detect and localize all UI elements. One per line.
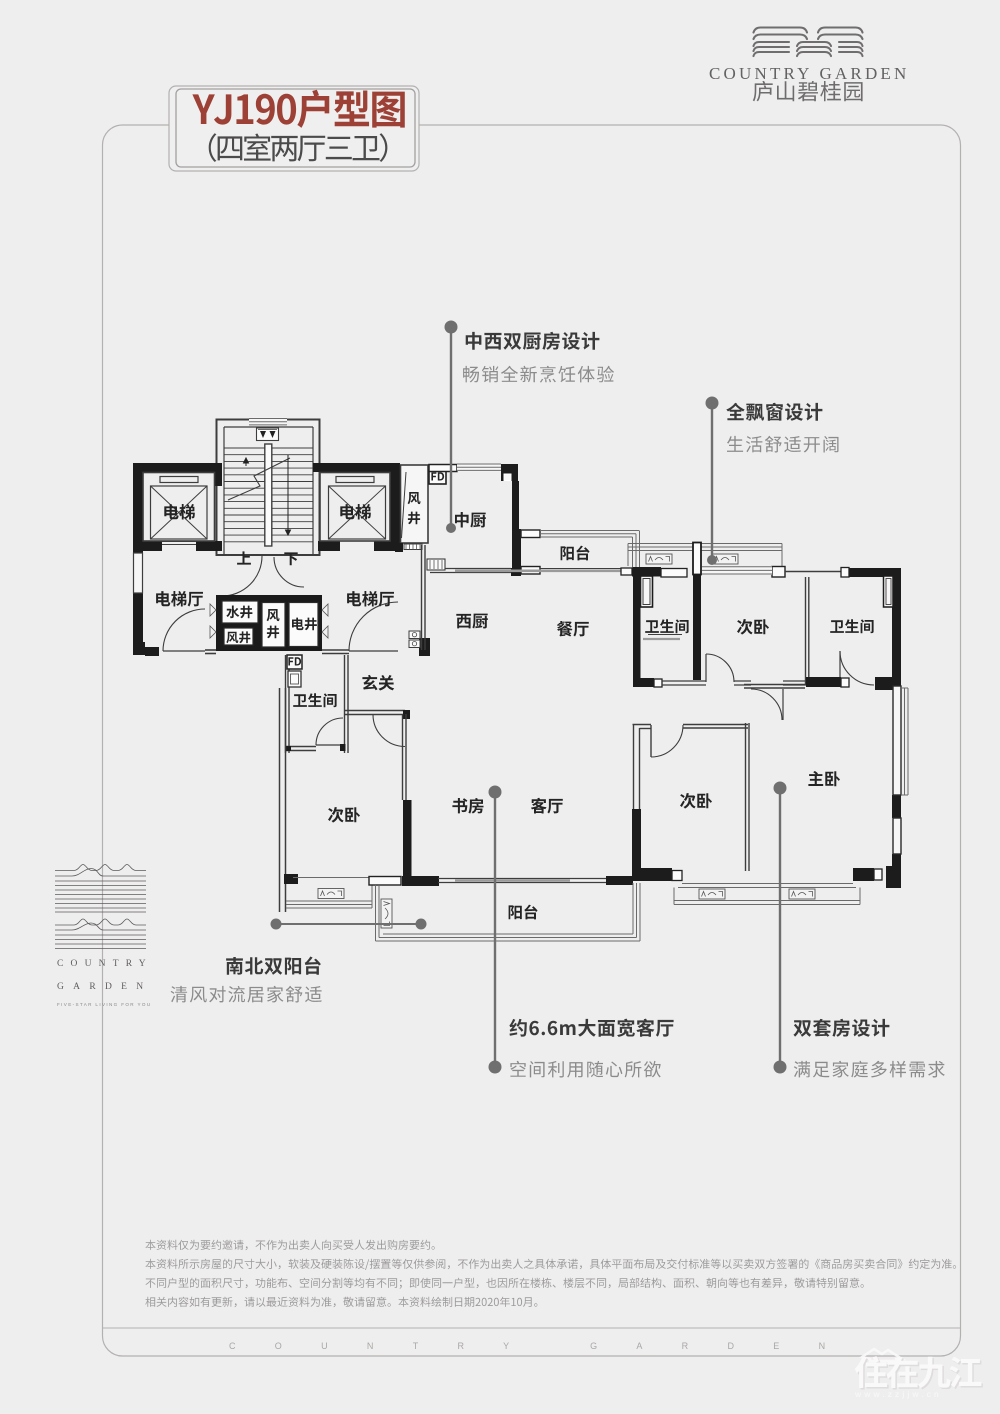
svg-text:FIVE-STAR LIVING FOR YOU: FIVE-STAR LIVING FOR YOU <box>57 1002 152 1007</box>
svg-text:COUNTRY: COUNTRY <box>57 959 153 969</box>
svg-text:COUNTRY GARDEN: COUNTRY GARDEN <box>229 1341 864 1351</box>
svg-text:GARDEN: GARDEN <box>57 982 152 992</box>
svg-text:COUNTRY GARDEN: COUNTRY GARDEN <box>709 64 909 83</box>
svg-text:www.zzjjw.cn: www.zzjjw.cn <box>854 1389 942 1399</box>
